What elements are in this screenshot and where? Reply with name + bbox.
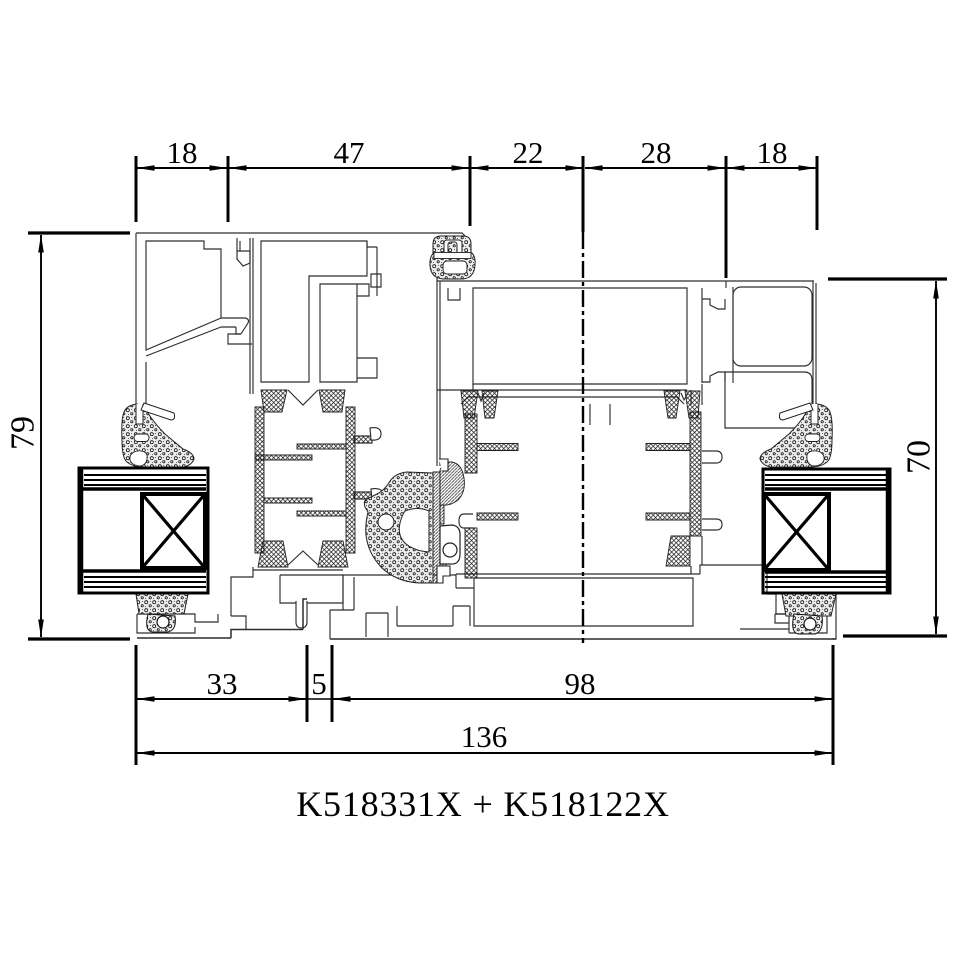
svg-text:98: 98 [565, 666, 596, 701]
svg-text:5: 5 [311, 666, 327, 701]
svg-text:28: 28 [641, 135, 672, 170]
svg-text:79: 79 [5, 416, 42, 450]
svg-text:47: 47 [334, 135, 365, 170]
svg-text:22: 22 [513, 135, 544, 170]
svg-text:136: 136 [461, 719, 508, 754]
svg-text:18: 18 [167, 135, 198, 170]
svg-text:70: 70 [901, 440, 938, 474]
svg-text:K518331X + K518122X: K518331X + K518122X [296, 784, 670, 824]
svg-text:33: 33 [207, 666, 238, 701]
svg-text:18: 18 [757, 135, 788, 170]
